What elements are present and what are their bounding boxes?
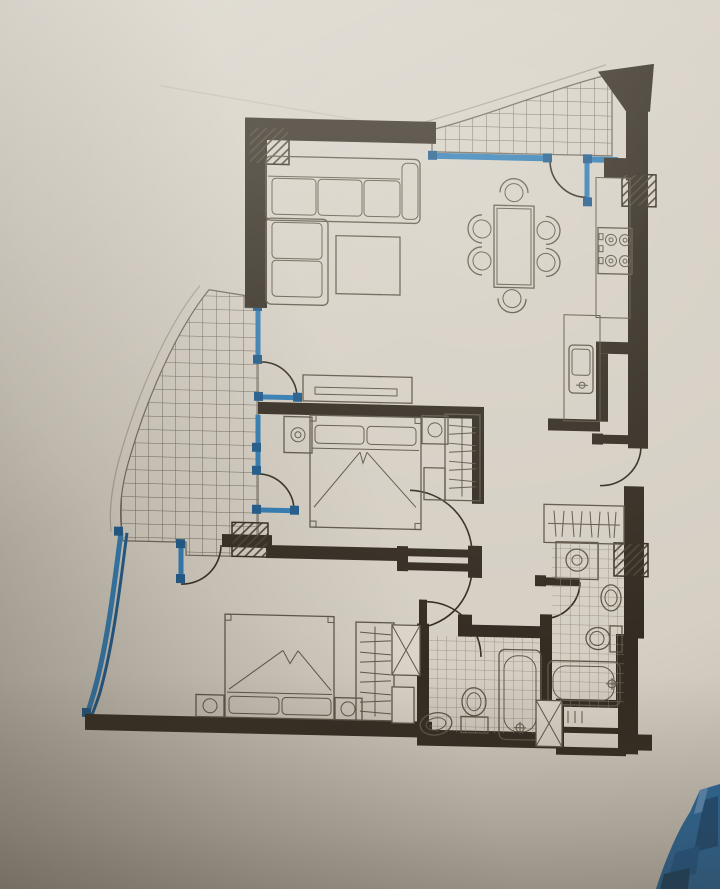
wall-kitchen-duct-top [596, 342, 632, 355]
lamp [341, 702, 355, 716]
chair [505, 183, 523, 201]
balcony-left [121, 288, 258, 557]
chair-back [468, 247, 482, 275]
duct-box [392, 687, 414, 723]
wall-right-upper [628, 176, 648, 448]
dining-table-inner [497, 208, 531, 285]
glazing-top [428, 151, 618, 207]
stove-knob [599, 234, 603, 240]
bedroom2-door-hinge [397, 560, 408, 571]
bathroom-2 [548, 541, 624, 708]
living-balcony-door-leaf [260, 397, 298, 398]
sofa-cushion [272, 178, 316, 215]
bathroom2-tiles [552, 542, 624, 709]
wall-bedroom1-bottom [266, 545, 408, 561]
sofa-armrest [402, 163, 418, 219]
nightstand [422, 416, 448, 445]
lamp [291, 428, 305, 442]
bed2-pillow [282, 697, 331, 715]
stove-knob [599, 258, 603, 264]
balcony-top [432, 70, 612, 156]
bed2-pillow [229, 696, 279, 714]
wall-kitchen-bottom [548, 418, 600, 431]
bedroom1-door-hinge [397, 546, 408, 557]
balcony-door-arc [550, 160, 586, 197]
bed2-blanket-fold [229, 649, 331, 691]
bedroom-2 [196, 613, 394, 720]
riser-box [564, 707, 618, 728]
sofa-horizontal [266, 156, 420, 223]
burner [606, 234, 617, 245]
sofa-cushion [272, 260, 322, 297]
bedroom1-balcony-door-arc [258, 474, 294, 511]
chair-back [498, 298, 526, 313]
nightstand [335, 698, 362, 721]
living-balcony-door-arc [262, 362, 297, 398]
hall-doors [397, 490, 474, 630]
coffee-table [336, 236, 400, 295]
nightstand [284, 416, 312, 453]
chair [537, 221, 555, 239]
chair-back [500, 178, 528, 193]
hatched-column-top-right [622, 174, 656, 207]
dining-table [494, 205, 534, 288]
lamp [428, 423, 442, 437]
stove-knob [599, 246, 603, 252]
plan [82, 51, 656, 757]
chair [537, 253, 555, 271]
window-top-left-segment [432, 156, 548, 159]
sofa-cushion [364, 180, 400, 217]
bed1-pillow [367, 426, 416, 445]
kitchen-door-arc [600, 447, 641, 487]
balcony-left-tiles [121, 288, 258, 557]
chair-back [546, 248, 560, 276]
wall-bedroom1-right [472, 412, 484, 504]
chair-back [546, 216, 560, 244]
sofa-cushion [318, 179, 362, 216]
floor-plan-drawing [0, 0, 720, 889]
kitchen-sink [569, 345, 593, 394]
hatched-column-top-left [249, 127, 289, 165]
closet [544, 504, 624, 544]
bedroom1-balcony-door-leaf [257, 510, 295, 511]
lamp [203, 699, 217, 713]
bedroom1-door-leaf [404, 548, 474, 558]
kitchen-door [592, 433, 642, 486]
sofa-cushion [272, 222, 322, 259]
bed1-pillow [315, 425, 364, 444]
bedroom2-door-leaf [404, 562, 474, 572]
wall-kitchen-duct-left [596, 354, 608, 422]
chair [473, 220, 491, 238]
bathroom-1 [418, 635, 541, 740]
bed1 [310, 415, 421, 530]
blue-object [656, 784, 720, 889]
riser-box [564, 733, 618, 748]
living-room [266, 156, 420, 403]
balcony-top-tiles [432, 70, 612, 156]
hatched-column-mid-left [232, 522, 268, 557]
chair-back [468, 215, 482, 243]
shafts-left [392, 625, 420, 724]
burner [606, 255, 617, 266]
kitchen-door-hinge [592, 433, 603, 444]
kitchen-sink-basin [572, 349, 590, 375]
bathroom2-door-hinge [535, 575, 546, 586]
dining-area [468, 178, 560, 314]
bedroom-1 [284, 410, 480, 530]
floor-plan-photo [0, 0, 720, 889]
tv-set [315, 387, 397, 396]
kitchen-door-leaf [600, 435, 642, 445]
bed1-blanket-fold [314, 451, 416, 509]
chair [503, 289, 521, 307]
nightstand [196, 694, 224, 717]
chair [473, 252, 491, 270]
